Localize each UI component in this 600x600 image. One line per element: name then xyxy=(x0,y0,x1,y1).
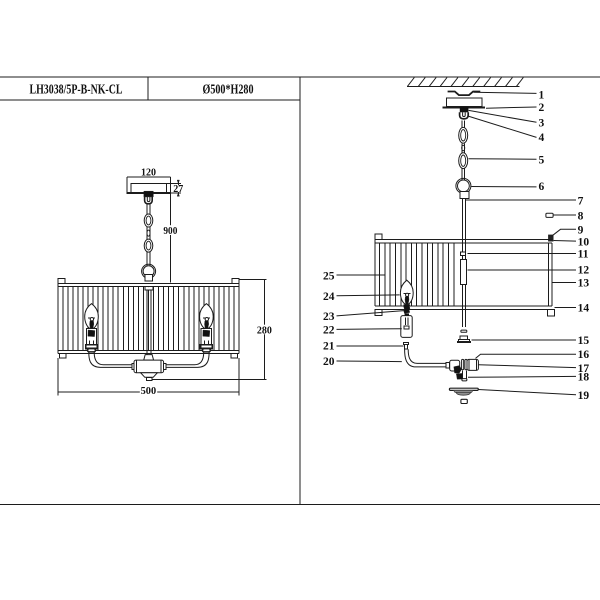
svg-text:8: 8 xyxy=(578,210,584,222)
svg-text:120: 120 xyxy=(141,168,156,179)
svg-text:14: 14 xyxy=(578,303,590,315)
svg-text:Ø500*H280: Ø500*H280 xyxy=(203,82,254,97)
svg-text:13: 13 xyxy=(578,277,590,289)
svg-text:18: 18 xyxy=(578,371,590,383)
svg-text:2: 2 xyxy=(539,102,545,114)
svg-text:900: 900 xyxy=(163,226,177,237)
svg-text:500: 500 xyxy=(141,386,157,397)
svg-text:10: 10 xyxy=(578,236,590,248)
svg-text:1: 1 xyxy=(539,89,545,101)
svg-text:24: 24 xyxy=(323,291,335,303)
svg-text:11: 11 xyxy=(578,249,589,261)
svg-text:4: 4 xyxy=(539,132,545,144)
svg-text:22: 22 xyxy=(323,325,335,337)
svg-text:23: 23 xyxy=(323,311,335,323)
svg-text:7: 7 xyxy=(578,195,584,207)
svg-text:21: 21 xyxy=(323,341,335,353)
svg-text:9: 9 xyxy=(578,224,584,236)
svg-text:20: 20 xyxy=(323,356,335,368)
svg-text:5: 5 xyxy=(539,155,545,167)
svg-text:280: 280 xyxy=(257,326,272,337)
svg-text:19: 19 xyxy=(578,390,590,402)
svg-text:25: 25 xyxy=(323,270,335,282)
svg-text:15: 15 xyxy=(578,335,590,347)
svg-text:16: 16 xyxy=(578,349,590,361)
svg-text:6: 6 xyxy=(539,181,545,193)
svg-text:3: 3 xyxy=(539,117,545,129)
svg-text:27: 27 xyxy=(173,184,183,195)
svg-text:12: 12 xyxy=(578,265,590,277)
svg-text:LH3038/5P-B-NK-CL: LH3038/5P-B-NK-CL xyxy=(30,82,123,97)
